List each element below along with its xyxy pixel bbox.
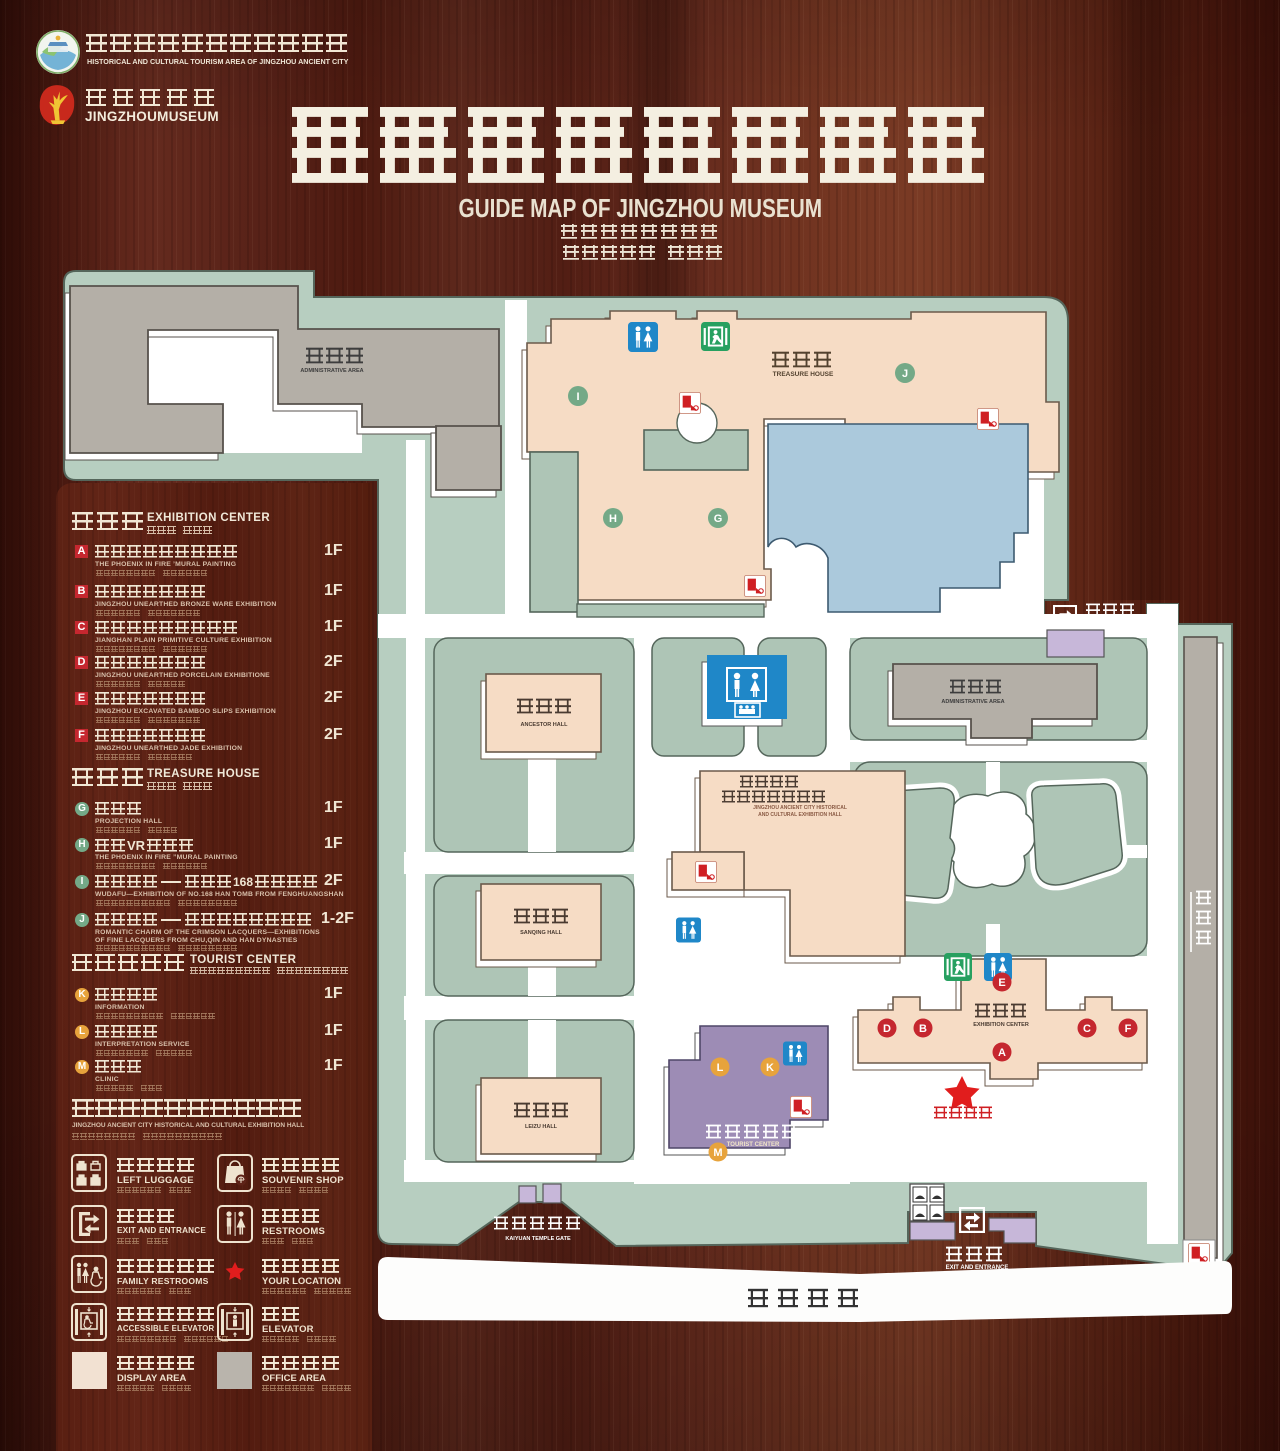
svg-text:AND CULTURAL EXHIBITION HALL: AND CULTURAL EXHIBITION HALL <box>758 812 842 818</box>
svg-text:EXHIBITION CENTER: EXHIBITION CENTER <box>973 1022 1029 1028</box>
svg-text:F: F <box>1125 1023 1132 1035</box>
svg-text:H: H <box>609 513 617 525</box>
svg-text:K: K <box>766 1062 774 1074</box>
svg-text:A: A <box>998 1047 1006 1059</box>
svg-text:G: G <box>714 513 723 525</box>
svg-text:B: B <box>919 1023 927 1035</box>
svg-text:L: L <box>717 1062 724 1074</box>
svg-text:E: E <box>998 977 1005 989</box>
svg-text:ANCESTOR HALL: ANCESTOR HALL <box>521 722 569 728</box>
svg-text:LEIZU HALL: LEIZU HALL <box>525 1124 558 1130</box>
svg-text:JINGZHOU ANCIENT CITY HISTORIC: JINGZHOU ANCIENT CITY HISTORICAL <box>753 805 847 811</box>
svg-text:TOURIST CENTER: TOURIST CENTER <box>727 1142 780 1148</box>
svg-text:TREASURE HOUSE: TREASURE HOUSE <box>773 371 834 378</box>
svg-text:KAIYUAN TEMPLE GATE: KAIYUAN TEMPLE GATE <box>505 1236 571 1242</box>
svg-text:SANQING HALL: SANQING HALL <box>520 930 563 936</box>
svg-text:M: M <box>713 1147 722 1159</box>
svg-text:EXIT AND ENTRANCE: EXIT AND ENTRANCE <box>1080 620 1143 626</box>
svg-text:ADMINISTRATIVE AREA: ADMINISTRATIVE AREA <box>300 368 363 374</box>
svg-text:C: C <box>1083 1023 1091 1035</box>
svg-text:I: I <box>576 391 579 403</box>
svg-text:J: J <box>902 368 908 380</box>
svg-text:D: D <box>883 1023 891 1035</box>
svg-text:ADMINISTRATIVE AREA: ADMINISTRATIVE AREA <box>941 699 1004 705</box>
